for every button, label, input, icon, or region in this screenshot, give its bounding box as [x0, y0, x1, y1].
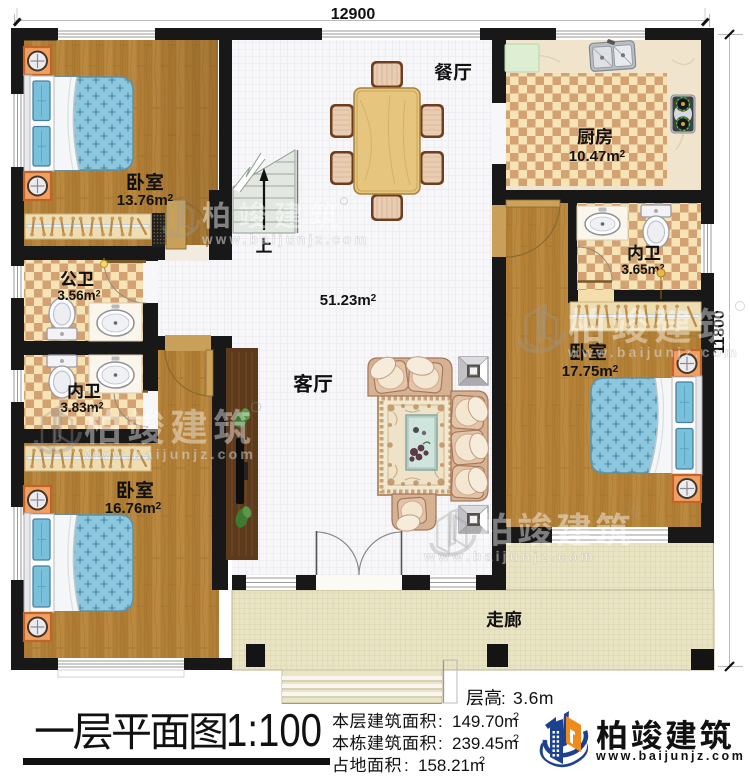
svg-text:2: 2: [513, 733, 519, 745]
svg-text:16.76m2: 16.76m2: [105, 500, 162, 517]
svg-text:13.76m2: 13.76m2: [117, 192, 174, 209]
svg-text:www.baijunjz.com: www.baijunjz.com: [201, 232, 370, 247]
svg-text:www.baijunjz.com: www.baijunjz.com: [567, 344, 740, 360]
svg-text:1:100: 1:100: [226, 704, 322, 756]
svg-text:3.56m2: 3.56m2: [57, 288, 100, 303]
svg-text:149.70m: 149.70m: [452, 712, 518, 731]
svg-text:158.21m: 158.21m: [418, 756, 484, 775]
svg-text:51.23m2: 51.23m2: [320, 292, 377, 309]
svg-text:3.83m2: 3.83m2: [60, 400, 103, 415]
svg-text:www.baijunjz.com: www.baijunjz.com: [595, 749, 745, 763]
svg-text:3.6m: 3.6m: [513, 688, 554, 708]
svg-text:10.47m2: 10.47m2: [569, 148, 626, 165]
svg-text::: :: [438, 734, 443, 753]
svg-text:2: 2: [513, 711, 519, 723]
svg-text:2: 2: [479, 755, 485, 767]
svg-text::: :: [404, 756, 409, 775]
svg-text:www.baijunjz.com: www.baijunjz.com: [83, 446, 256, 462]
svg-text:239.45m: 239.45m: [452, 734, 518, 753]
svg-text:12900: 12900: [331, 6, 376, 23]
svg-text::: :: [438, 712, 443, 731]
svg-text::: :: [501, 689, 506, 708]
svg-text:17.75m2: 17.75m2: [562, 363, 619, 380]
